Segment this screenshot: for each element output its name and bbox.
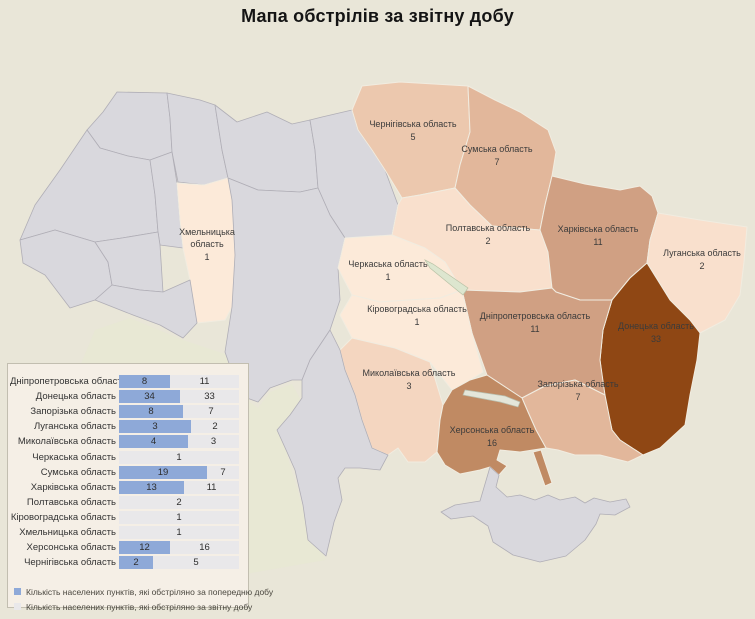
value-reporting-day: 1 xyxy=(119,511,239,524)
value-reporting-day: 33 xyxy=(180,390,239,403)
chart-row: Черкаська область1 xyxy=(8,449,248,464)
map-label-text: Запорізька область xyxy=(537,379,618,389)
chart-row: Харківська область1311 xyxy=(8,480,248,495)
map-label-text: Луганська область xyxy=(663,248,741,258)
value-reporting-day: 3 xyxy=(188,435,239,448)
bar-track: 2 xyxy=(119,496,239,509)
chart-row-label: Херсонська область xyxy=(10,542,116,553)
value-reporting-day: 2 xyxy=(191,420,239,433)
map-label-text: 16 xyxy=(487,438,497,448)
map-label-text: 5 xyxy=(410,132,415,142)
legend-item: Кількість населених пунктів, які обстріл… xyxy=(14,599,248,614)
map-label-text: Кіровоградська область xyxy=(367,304,467,314)
map-label-text: Донецька область xyxy=(618,321,694,331)
map-label-text: Черкаська область xyxy=(348,259,428,269)
value-previous-day: 34 xyxy=(119,390,180,403)
chart-legend: Кількість населених пунктів, які обстріл… xyxy=(14,584,248,614)
bar-track: 1311 xyxy=(119,481,239,494)
value-reporting-day: 1 xyxy=(119,451,239,464)
value-reporting-day: 5 xyxy=(153,556,239,569)
bar-track: 1 xyxy=(119,526,239,539)
map-label-text: Херсонська область xyxy=(450,425,535,435)
bar-track: 25 xyxy=(119,556,239,569)
chart-row: Херсонська область1216 xyxy=(8,540,248,555)
map-label-text: Полтавська область xyxy=(446,223,531,233)
bar-track: 43 xyxy=(119,435,239,448)
map-label-text: Хмельницька xyxy=(179,227,235,237)
chart-row-label: Черкаська область xyxy=(10,452,116,463)
value-reporting-day: 7 xyxy=(207,466,239,479)
chart-row: Чернігівська область25 xyxy=(8,555,248,570)
shelling-stats-panel: Дніпропетровська область811Донецька обла… xyxy=(7,363,249,608)
region-kherson-arabat-spit xyxy=(533,450,552,486)
map-label-text: 11 xyxy=(530,324,539,334)
bar-track: 1216 xyxy=(119,541,239,554)
bar-track: 87 xyxy=(119,405,239,418)
chart-row-label: Дніпропетровська область xyxy=(10,376,116,387)
value-previous-day: 8 xyxy=(119,375,170,388)
chart-row: Сумська область197 xyxy=(8,465,248,480)
legend-swatch xyxy=(14,603,21,610)
bar-track: 1 xyxy=(119,451,239,464)
bar-track: 1 xyxy=(119,511,239,524)
chart-row-label: Кіровоградська область xyxy=(10,512,116,523)
map-label-text: Миколаївська область xyxy=(363,368,456,378)
map-label-text: область xyxy=(190,239,224,249)
chart-row-label: Чернігівська область xyxy=(10,557,116,568)
value-previous-day: 8 xyxy=(119,405,183,418)
map-label-text: 2 xyxy=(699,261,704,271)
value-reporting-day: 2 xyxy=(119,496,239,509)
chart-row: Миколаївська область43 xyxy=(8,434,248,449)
bar-track: 32 xyxy=(119,420,239,433)
region-crimea xyxy=(441,467,630,562)
chart-row: Полтавська область2 xyxy=(8,495,248,510)
stacked-bar-chart: Дніпропетровська область811Донецька обла… xyxy=(8,374,248,570)
legend-label: Кількість населених пунктів, які обстріл… xyxy=(26,587,273,597)
chart-row-label: Хмельницька область xyxy=(10,527,116,538)
value-previous-day: 13 xyxy=(119,481,184,494)
value-previous-day: 2 xyxy=(119,556,153,569)
legend-item: Кількість населених пунктів, які обстріл… xyxy=(14,584,248,599)
value-reporting-day: 11 xyxy=(184,481,239,494)
chart-row-label: Запорізька область xyxy=(10,406,116,417)
map-label-text: 7 xyxy=(575,392,580,402)
map-label-text: Чернігівська область xyxy=(369,119,456,129)
chart-row: Дніпропетровська область811 xyxy=(8,374,248,389)
map-label-text: Сумська область xyxy=(461,144,533,154)
bar-track: 197 xyxy=(119,466,239,479)
legend-swatch xyxy=(14,588,21,595)
bar-track: 3433 xyxy=(119,390,239,403)
map-label-text: 33 xyxy=(651,334,661,344)
map-label-text: Дніпропетровська область xyxy=(480,311,591,321)
map-label-text: 2 xyxy=(485,236,490,246)
map-label-text: 11 xyxy=(593,237,602,247)
legend-label: Кількість населених пунктів, які обстріл… xyxy=(26,602,252,612)
region-rivne xyxy=(167,93,228,185)
value-reporting-day: 11 xyxy=(170,375,239,388)
value-reporting-day: 1 xyxy=(119,526,239,539)
chart-row: Кіровоградська область1 xyxy=(8,510,248,525)
chart-row: Хмельницька область1 xyxy=(8,525,248,540)
value-previous-day: 12 xyxy=(119,541,170,554)
chart-row: Запорізька область87 xyxy=(8,404,248,419)
bar-track: 811 xyxy=(119,375,239,388)
map-label-text: 1 xyxy=(414,317,419,327)
map-label-text: 1 xyxy=(204,252,209,262)
chart-row-label: Полтавська область xyxy=(10,497,116,508)
chart-row: Донецька область3433 xyxy=(8,389,248,404)
chart-row-label: Луганська область xyxy=(10,421,116,432)
value-previous-day: 3 xyxy=(119,420,191,433)
value-previous-day: 4 xyxy=(119,435,188,448)
chart-row: Луганська область32 xyxy=(8,419,248,434)
map-label-text: Харківська область xyxy=(558,224,639,234)
map-label-text: 1 xyxy=(385,272,390,282)
map-label-text: 3 xyxy=(406,381,411,391)
map-label-text: 7 xyxy=(494,157,499,167)
chart-row-label: Сумська область xyxy=(10,467,116,478)
value-previous-day: 19 xyxy=(119,466,207,479)
value-reporting-day: 16 xyxy=(170,541,239,554)
shelling-map-page: Мапа обстрілів за звітну добу xyxy=(0,0,755,619)
chart-row-label: Донецька область xyxy=(10,391,116,402)
value-reporting-day: 7 xyxy=(183,405,239,418)
chart-row-label: Харківська область xyxy=(10,482,116,493)
chart-row-label: Миколаївська область xyxy=(10,436,116,447)
